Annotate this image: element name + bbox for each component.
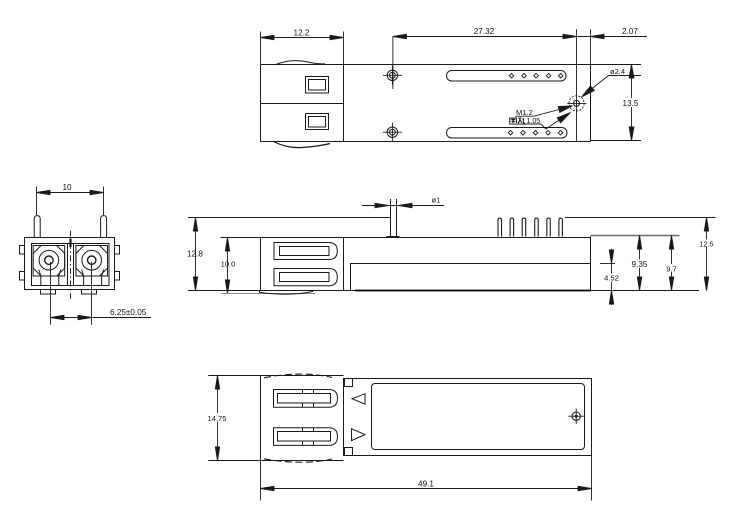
svg-text:12.8: 12.8 bbox=[187, 249, 203, 258]
svg-text:4.52: 4.52 bbox=[604, 274, 619, 283]
svg-text:49.1: 49.1 bbox=[418, 480, 434, 489]
svg-text:2.07: 2.07 bbox=[622, 27, 638, 36]
svg-text:ø2.4: ø2.4 bbox=[610, 67, 625, 76]
svg-text:ø1: ø1 bbox=[432, 196, 441, 205]
svg-text:13.5: 13.5 bbox=[623, 99, 639, 108]
svg-text:14.75: 14.75 bbox=[207, 414, 226, 423]
svg-text:27.32: 27.32 bbox=[474, 27, 495, 36]
svg-text:9.7: 9.7 bbox=[666, 264, 677, 273]
svg-text:9.35: 9.35 bbox=[632, 260, 648, 269]
svg-text:1.05: 1.05 bbox=[527, 118, 541, 125]
svg-text:12.2: 12.2 bbox=[294, 29, 310, 38]
svg-text:12.5: 12.5 bbox=[699, 239, 713, 248]
svg-text:10: 10 bbox=[62, 183, 72, 192]
svg-text:M1.2: M1.2 bbox=[516, 108, 533, 117]
svg-text:6.25±0.05: 6.25±0.05 bbox=[110, 308, 147, 317]
svg-text:10.0: 10.0 bbox=[221, 259, 236, 268]
